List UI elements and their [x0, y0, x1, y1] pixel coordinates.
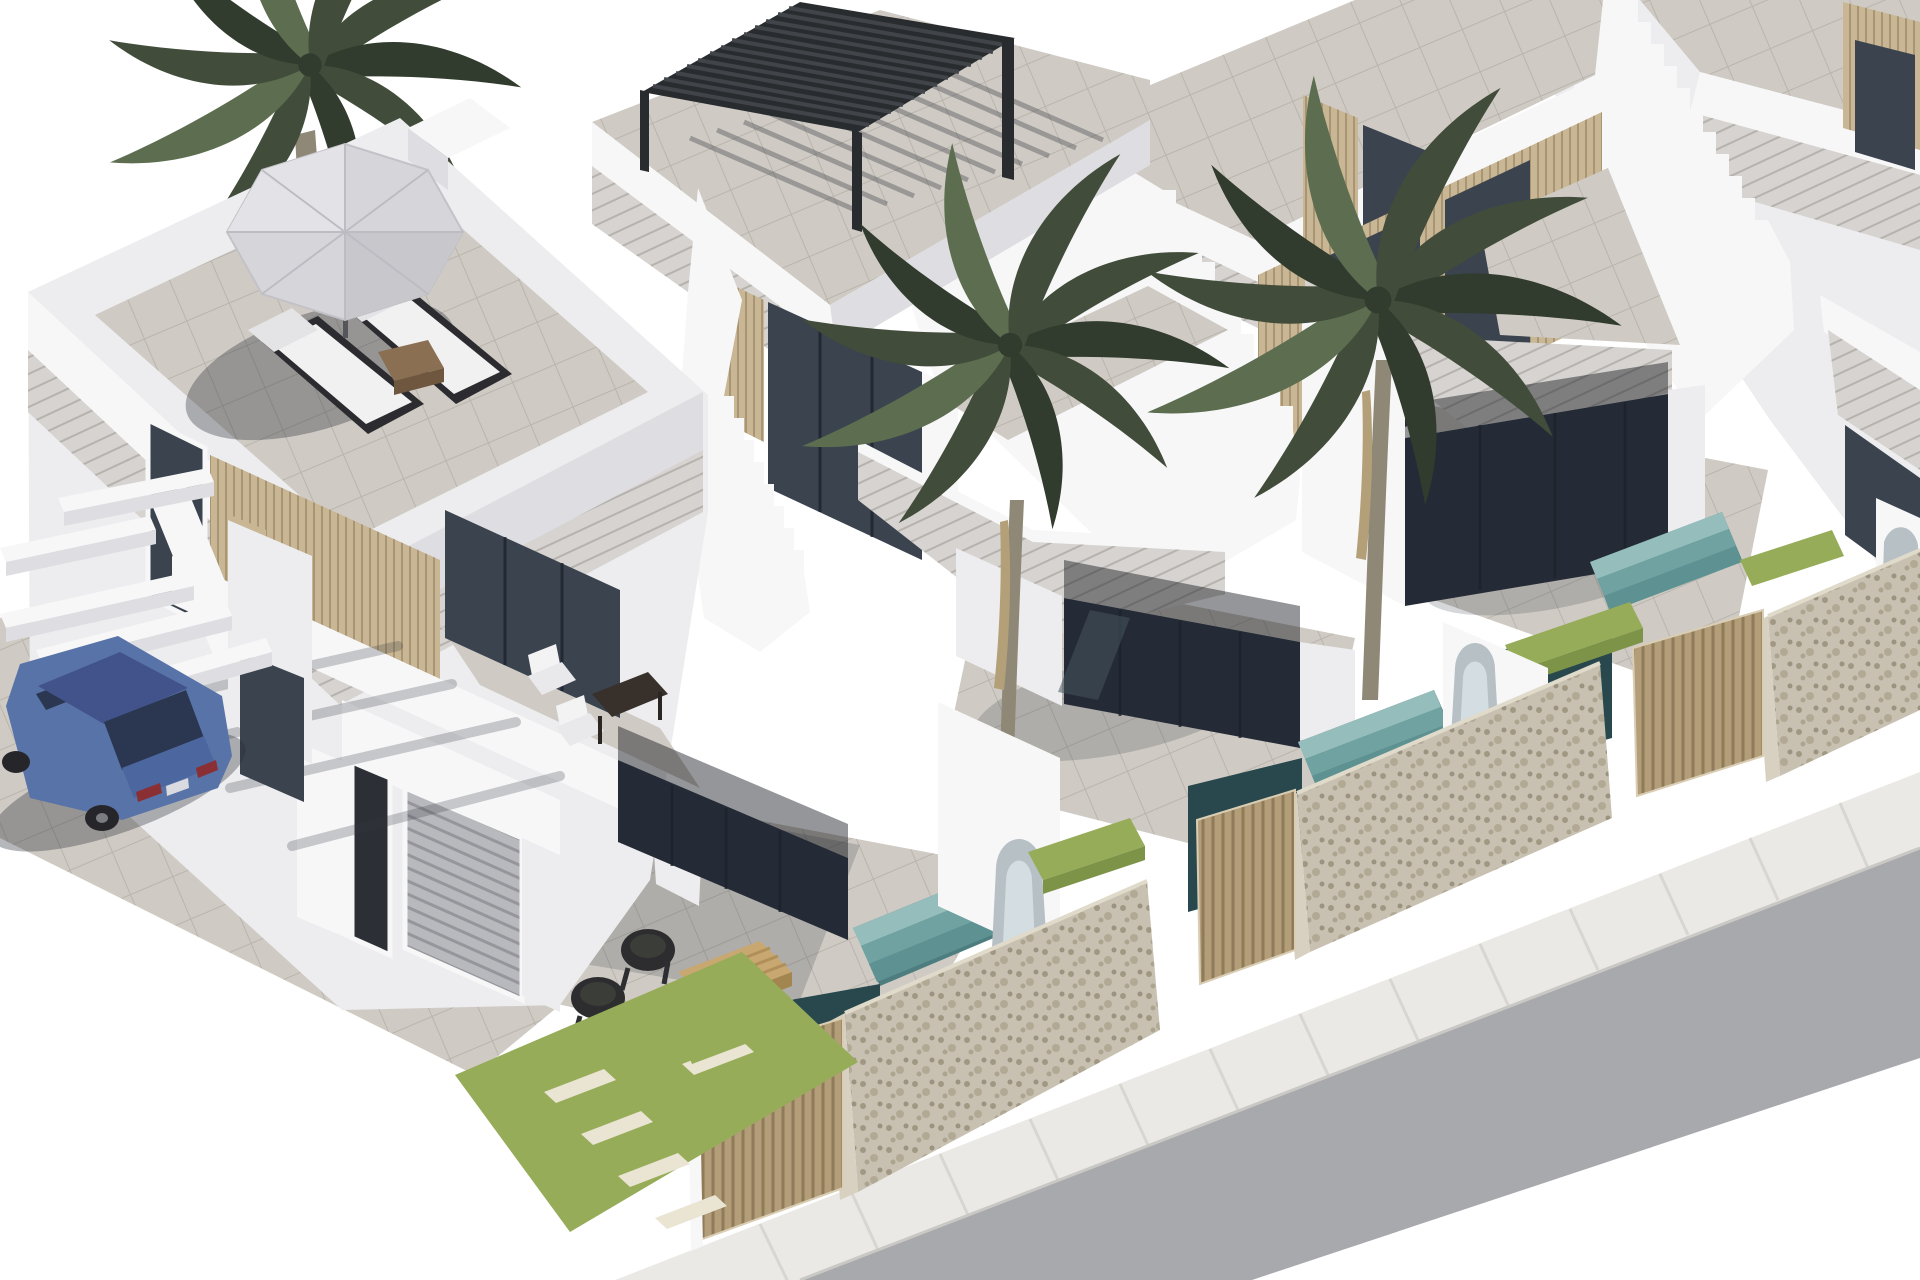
pergola-leg: [1002, 36, 1014, 180]
villa1-entry-door: [352, 762, 390, 955]
wicker-chair-cushion: [630, 934, 666, 958]
pergola-leg: [640, 90, 649, 172]
render-canvas: [0, 0, 1920, 1280]
car-hubcap: [96, 813, 108, 823]
architectural-render: [0, 0, 1920, 1280]
wicker-chair-cushion: [580, 982, 616, 1006]
villa4-glazing: [1855, 40, 1915, 170]
parasol-ribs: [227, 144, 463, 320]
pergola-leg: [852, 130, 862, 232]
villa1-garage-pillar: [522, 838, 560, 1012]
car-wheel: [2, 751, 30, 773]
